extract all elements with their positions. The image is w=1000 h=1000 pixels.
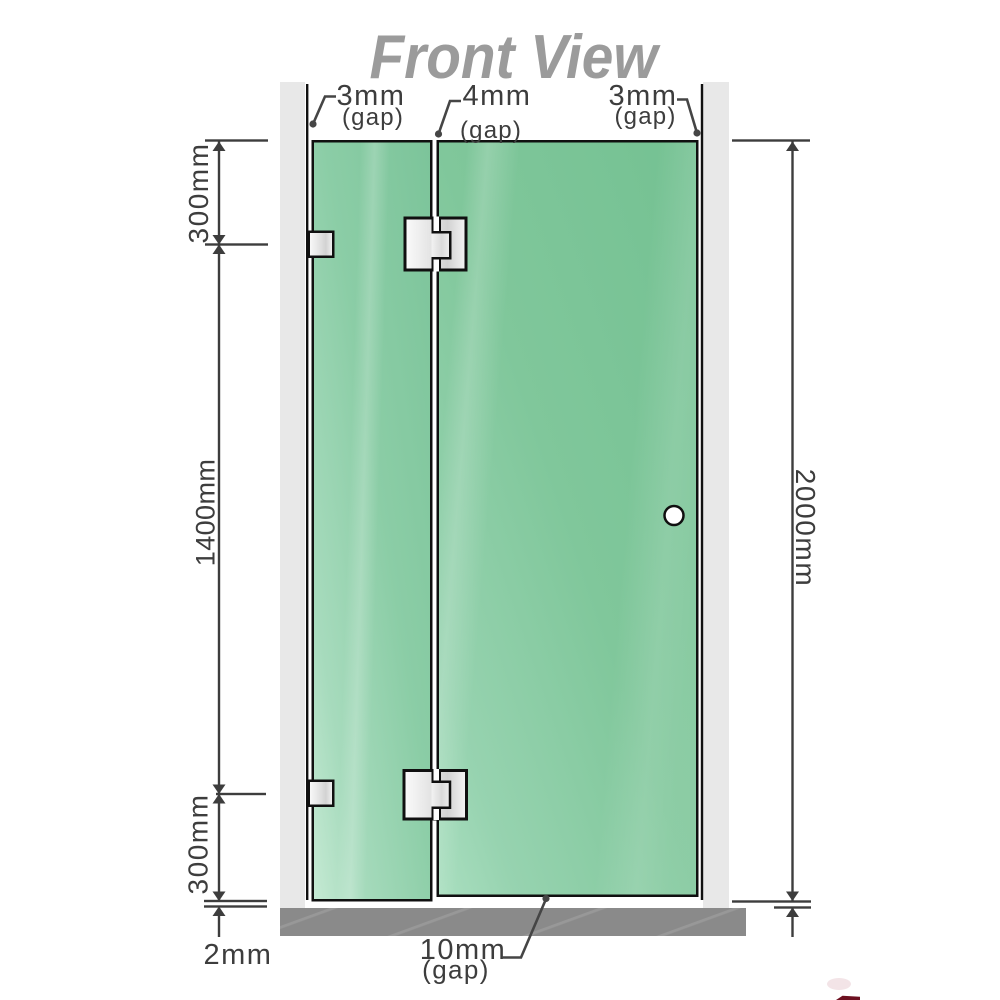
svg-text:300mm: 300mm [182, 794, 213, 895]
svg-text:4mm: 4mm [463, 80, 532, 112]
svg-text:2000mm: 2000mm [790, 469, 821, 588]
svg-text:(gap): (gap) [422, 955, 490, 985]
svg-text:1400mm: 1400mm [191, 459, 221, 566]
svg-text:300mm: 300mm [183, 143, 214, 244]
svg-text:(gap): (gap) [460, 117, 522, 144]
svg-text:(gap): (gap) [342, 104, 404, 131]
svg-text:2mm: 2mm [204, 939, 273, 971]
svg-text:(gap): (gap) [614, 103, 676, 130]
